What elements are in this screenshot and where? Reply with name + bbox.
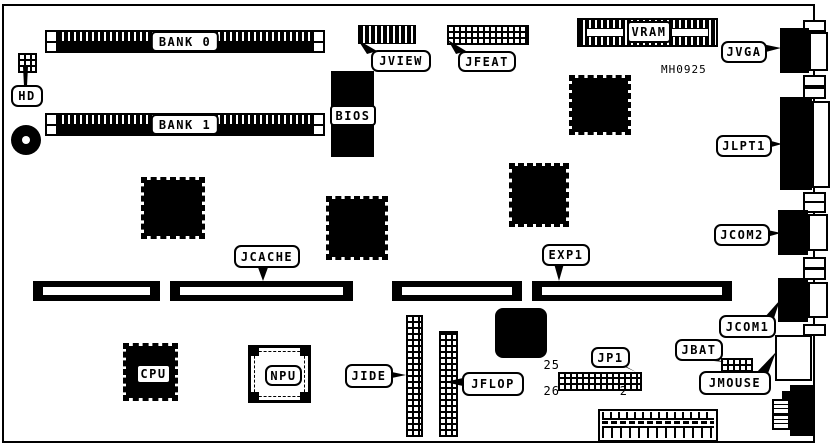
board-id-text: MH0925 xyxy=(661,64,707,75)
isa-slot-3 xyxy=(392,281,522,301)
npu-corner-key xyxy=(300,348,308,356)
motherboard-diagram: BANK 0 BANK 1 HD JVIEW JFEAT BIOS VRAM M… xyxy=(0,0,834,447)
port-mount-tab xyxy=(803,75,826,87)
mounting-hole xyxy=(11,125,41,155)
vga-port xyxy=(780,28,809,73)
jp1-pin26-text: 26 xyxy=(540,385,560,397)
simm-latch-icon xyxy=(312,115,323,134)
bank1-label: BANK 1 xyxy=(151,114,219,135)
parallel-port xyxy=(780,97,812,190)
jmouse-label: JMOUSE xyxy=(699,371,771,395)
jflop-label: JFLOP xyxy=(462,372,524,396)
keyboard-port xyxy=(790,427,813,436)
com2-port xyxy=(778,210,808,255)
bank1-simm-socket: BANK 1 xyxy=(45,113,325,136)
npu-label: NPU xyxy=(265,365,302,386)
com1-port xyxy=(778,278,808,322)
vram-label: VRAM xyxy=(627,21,671,43)
qfp-chip xyxy=(141,177,205,239)
hd-header xyxy=(18,53,37,73)
jview-label: JVIEW xyxy=(371,50,431,72)
jvga-label: JVGA xyxy=(721,41,767,63)
isa-slot-1 xyxy=(33,281,160,301)
jflop-header xyxy=(439,331,458,437)
keyboard-port-pin-block xyxy=(772,414,790,430)
jbat-connector xyxy=(721,358,753,372)
simm-latch-icon xyxy=(47,115,58,134)
npu-corner-key xyxy=(251,348,259,356)
port-mount-tab xyxy=(803,324,826,336)
npu-corner-key xyxy=(251,392,259,400)
jp1-pin25-text: 25 xyxy=(540,359,560,371)
parallel-port-shell xyxy=(812,101,830,188)
hd-label: HD xyxy=(11,85,43,107)
bios-label: BIOS xyxy=(330,105,376,126)
simm-latch-icon xyxy=(47,32,58,51)
jcom2-label: JCOM2 xyxy=(714,224,770,246)
jview-header xyxy=(358,25,416,44)
vram-slot xyxy=(586,28,624,37)
jcom1-label: JCOM1 xyxy=(719,315,776,338)
jcache-label: JCACHE xyxy=(234,245,300,268)
jide-label: JIDE xyxy=(345,364,393,388)
qfp-chip xyxy=(569,75,631,135)
plcc-chip xyxy=(495,308,547,358)
qfp-chip xyxy=(509,163,569,227)
com2-port-shell xyxy=(808,214,828,251)
isa-slot-4 xyxy=(532,281,732,301)
isa-slot-2 xyxy=(170,281,353,301)
bank0-simm-socket: BANK 0 xyxy=(45,30,325,53)
vram-slot xyxy=(671,28,709,37)
simm-latch-icon xyxy=(312,32,323,51)
jp1-header xyxy=(558,372,642,391)
jfeat-label: JFEAT xyxy=(458,51,516,72)
bank0-label: BANK 0 xyxy=(151,31,219,52)
keyboard-port-pin-block xyxy=(772,399,790,415)
jide-header xyxy=(406,315,423,437)
jlpt1-label: JLPT1 xyxy=(716,135,772,157)
npu-corner-key xyxy=(300,392,308,400)
exp1-label: EXP1 xyxy=(542,244,590,266)
jp1-pin2-text: 2 xyxy=(612,385,628,397)
jp1-label: JP1 xyxy=(591,347,630,368)
com1-port-shell xyxy=(808,282,828,318)
power-connector xyxy=(598,409,718,442)
vga-port-shell xyxy=(809,32,828,71)
jbat-label: JBAT xyxy=(675,339,723,361)
jfeat-header xyxy=(447,25,529,45)
qfp-chip xyxy=(326,196,388,260)
cpu-label: CPU xyxy=(136,364,171,384)
jmouse-port xyxy=(775,335,812,381)
